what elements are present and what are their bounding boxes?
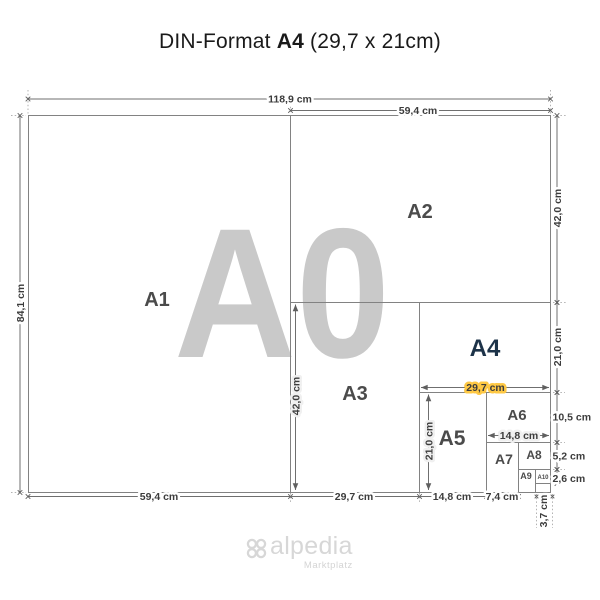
label-a9: A9 (520, 471, 532, 481)
label-a7: A7 (495, 451, 513, 467)
din-format-infographic: DIN-Format A4 (29,7 x 21cm) A0 (0, 0, 600, 600)
dim-a3-width: 29,7 cm (335, 491, 374, 503)
dim-a4-height: 21,0 cm (552, 328, 564, 367)
alpedia-clover-icon (246, 538, 267, 559)
logo-tagline: Marktplatz (304, 560, 353, 571)
dim-a4-inner-width: 29,7 cm (466, 382, 505, 394)
dim-a7-width: 7,4 cm (486, 491, 519, 503)
paper-size-diagram: A0 A1 A2 A3 A4 A5 A6 A7 A8 A9 A10 (0, 0, 600, 600)
dim-a1-width: 59,4 cm (140, 491, 179, 503)
dim-a10-height: 2,6 cm (553, 473, 586, 485)
label-a2: A2 (407, 201, 433, 223)
dim-a9-width: 3,7 cm (538, 495, 550, 528)
watermark-a0: A0 (174, 191, 390, 397)
dim-a2-height: 42,0 cm (552, 189, 564, 228)
label-a6: A6 (507, 407, 526, 424)
dim-a6-inner-width: 14,8 cm (500, 430, 539, 442)
label-a8: A8 (526, 448, 542, 462)
dim-a2-width: 59,4 cm (399, 105, 438, 117)
label-a5: A5 (439, 427, 466, 450)
dim-a0-width: 118,9 cm (268, 94, 312, 106)
dim-a3-inner-height: 42,0 cm (291, 377, 303, 416)
alpedia-logo: alpedia Marktplatz (246, 534, 353, 571)
dim-a8-height: 5,2 cm (553, 451, 586, 463)
dim-a6-height: 10,5 cm (553, 412, 592, 424)
dim-a5-width: 14,8 cm (433, 491, 472, 503)
logo-brand: alpedia (270, 534, 353, 559)
label-a10: A10 (537, 475, 549, 481)
label-a4: A4 (470, 335, 501, 362)
label-a3: A3 (342, 383, 368, 405)
label-a1: A1 (144, 289, 170, 311)
dim-a5-inner-height: 21,0 cm (423, 422, 435, 461)
dim-a0-height: 84,1 cm (15, 284, 27, 323)
